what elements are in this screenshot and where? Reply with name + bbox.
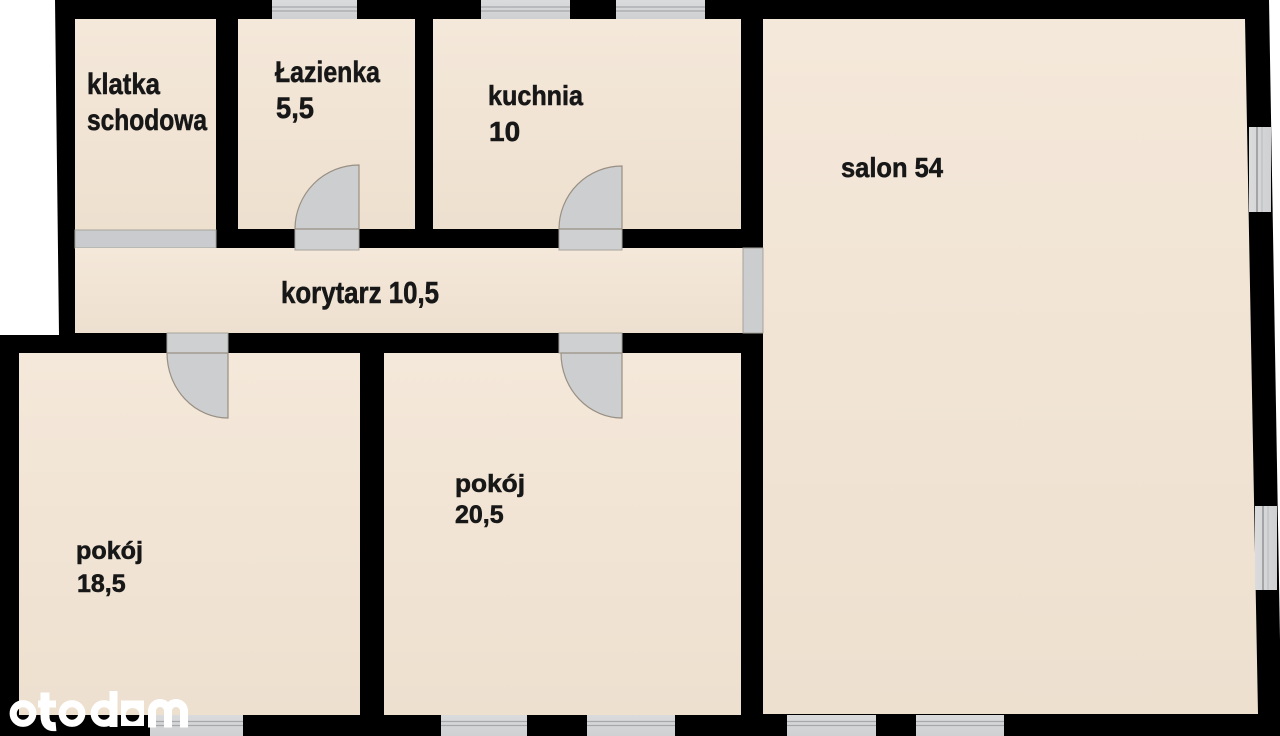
svg-text:20,5: 20,5 — [455, 501, 504, 529]
svg-text:pokój: pokój — [76, 537, 143, 565]
svg-text:schodowa: schodowa — [87, 104, 207, 137]
svg-text:kuchnia: kuchnia — [488, 80, 583, 111]
svg-text:salon 54: salon 54 — [841, 152, 943, 183]
svg-text:klatka: klatka — [87, 68, 160, 101]
svg-text:10: 10 — [489, 116, 520, 147]
svg-text:5,5: 5,5 — [276, 92, 314, 125]
svg-text:Łazienka: Łazienka — [275, 56, 380, 89]
svg-text:18,5: 18,5 — [77, 570, 126, 598]
svg-text:pokój: pokój — [455, 470, 525, 498]
svg-text:korytarz 10,5: korytarz 10,5 — [281, 275, 439, 310]
